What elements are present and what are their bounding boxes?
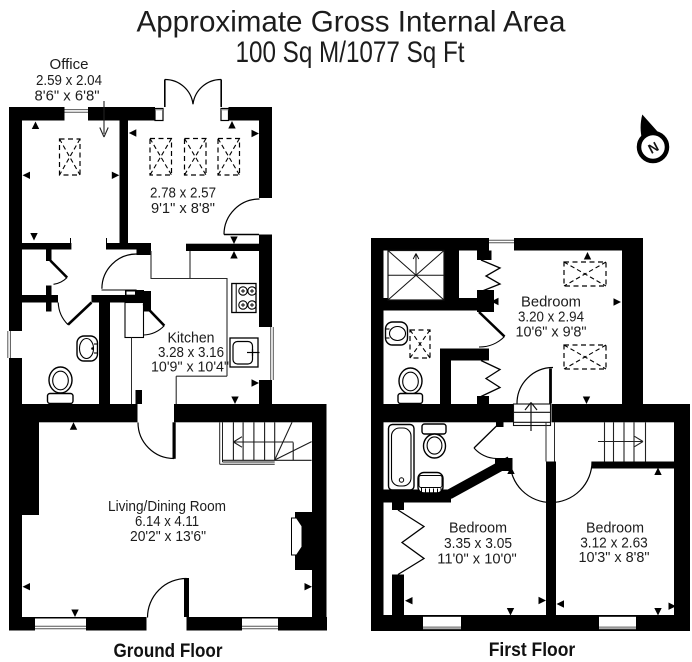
svg-text:10'3" x 8'8": 10'3" x 8'8" — [579, 549, 650, 566]
svg-text:100 Sq M/1077 Sq Ft: 100 Sq M/1077 Sq Ft — [236, 36, 466, 69]
svg-text:11'0" x 10'0": 11'0" x 10'0" — [437, 551, 517, 568]
svg-text:20'2" x 13'6": 20'2" x 13'6" — [130, 528, 206, 545]
svg-text:2.78 x 2.57: 2.78 x 2.57 — [150, 185, 216, 202]
svg-text:Approximate Gross Internal Are: Approximate Gross Internal Area — [137, 6, 566, 39]
svg-text:9'1" x 8'8": 9'1" x 8'8" — [151, 200, 215, 217]
svg-text:8'6" x 6'8": 8'6" x 6'8" — [35, 88, 100, 105]
svg-text:First Floor: First Floor — [489, 640, 576, 661]
svg-text:Bedroom: Bedroom — [449, 520, 507, 537]
svg-text:Office: Office — [50, 56, 89, 73]
svg-text:10'9" x 10'4": 10'9" x 10'4" — [151, 359, 229, 376]
svg-text:2.59 x 2.04: 2.59 x 2.04 — [36, 72, 102, 89]
svg-text:Ground Floor: Ground Floor — [114, 641, 224, 662]
svg-text:3.35 x 3.05: 3.35 x 3.05 — [444, 535, 512, 552]
svg-text:10'6" x 9'8": 10'6" x 9'8" — [516, 324, 587, 341]
